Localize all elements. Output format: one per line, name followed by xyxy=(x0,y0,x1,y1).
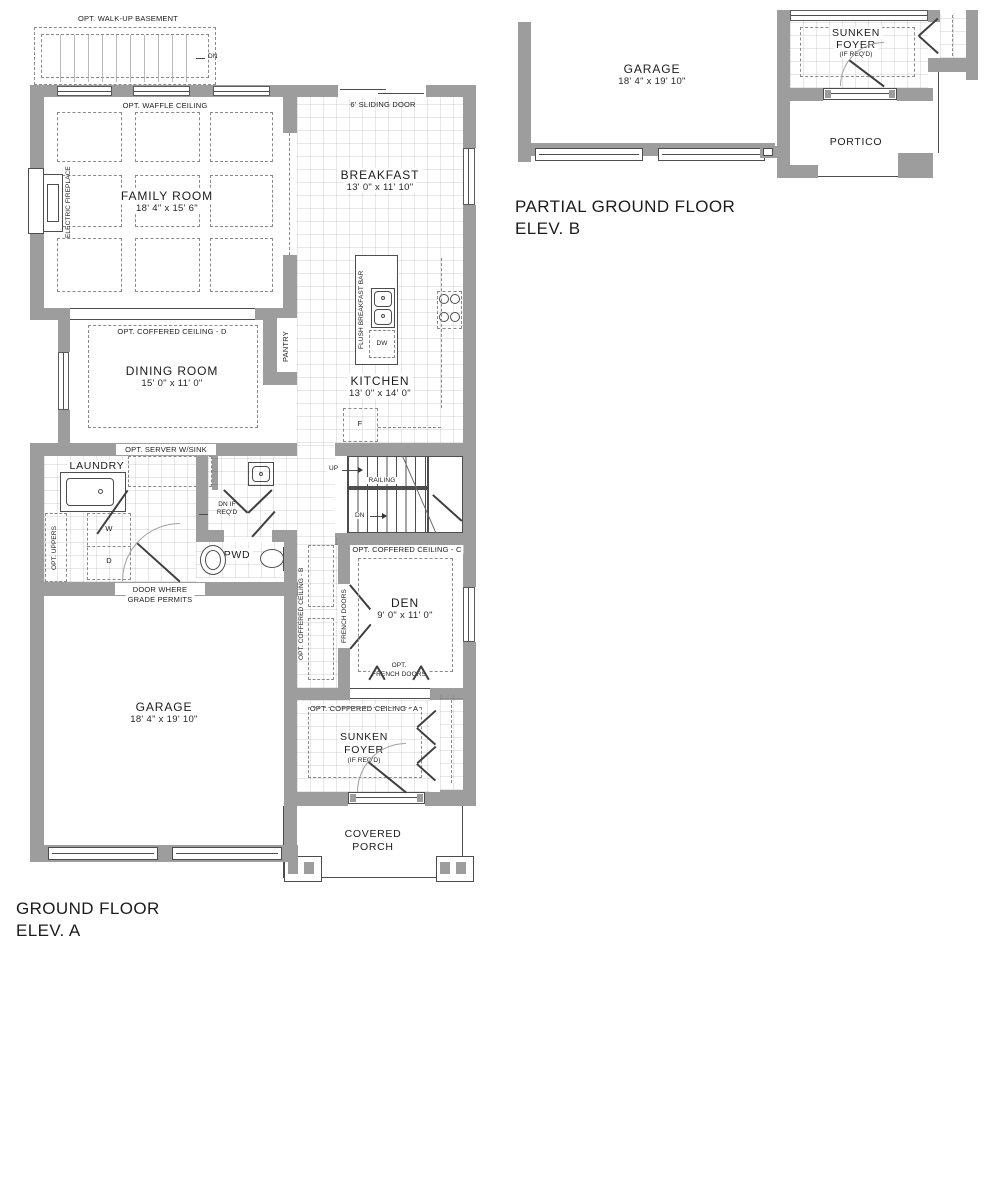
waffle-ceiling-label: OPT. WAFFLE CEILING xyxy=(123,101,208,110)
wall-segment xyxy=(263,372,297,385)
den-label: DEN xyxy=(388,596,422,610)
wall-segment xyxy=(284,537,297,806)
wall-segment xyxy=(196,456,208,537)
window xyxy=(790,10,928,21)
garage-door-line xyxy=(662,154,761,155)
wall-segment xyxy=(897,88,933,101)
covered-porch-label2: PORCH xyxy=(352,841,393,853)
step-line xyxy=(199,514,208,515)
walkup-basement-label: OPT. WALK-UP BASEMENT xyxy=(78,14,178,23)
fridge-label: F xyxy=(358,419,363,428)
wall-segment xyxy=(284,792,348,806)
sill-line xyxy=(831,93,889,94)
closet-shelf-dashed xyxy=(451,700,452,783)
upper-cabinet-dashed xyxy=(441,258,442,408)
dn-arrow-line xyxy=(370,516,382,517)
washer-label: W xyxy=(105,524,112,533)
walkup-dn-label: DN xyxy=(208,53,218,60)
wall-segment xyxy=(777,10,790,167)
coffered-b-outline xyxy=(308,618,334,680)
garage-b-dims: 18' 4" x 19' 10" xyxy=(618,76,685,87)
dining-room-label: DINING ROOM xyxy=(123,364,222,378)
fireplace-firebox xyxy=(47,184,59,222)
plan-b-title-line2: ELEV. B xyxy=(515,218,735,240)
porch-post-pier xyxy=(440,862,450,874)
sunken-foyer-b-label: SUNKEN xyxy=(830,27,882,39)
door-grade-label2: GRADE PERMITS xyxy=(126,595,195,604)
waffle-coffer xyxy=(135,238,200,292)
window xyxy=(133,86,190,96)
den-dims: 9' 0" x 11' 0" xyxy=(374,610,436,621)
sill-jamb xyxy=(825,90,831,98)
portico-edge xyxy=(938,72,939,153)
sliding-door xyxy=(338,85,426,97)
window xyxy=(58,352,69,410)
railing-label: RAILING xyxy=(367,477,398,484)
dn-arrow-head xyxy=(382,513,387,519)
plan-a-title-line1: GROUND FLOOR xyxy=(16,898,160,920)
wall-segment xyxy=(463,642,476,806)
dryer-label: D xyxy=(106,556,112,565)
garage-dims: 18' 4" x 19' 10" xyxy=(130,714,197,725)
wall-segment xyxy=(335,443,463,456)
flush-breakfast-bar-label: FLUSH BREAKFAST BAR xyxy=(358,260,365,360)
family-room-label: FAMILY ROOM xyxy=(118,189,216,203)
hall-floor xyxy=(297,443,335,537)
wall-segment xyxy=(283,255,297,308)
wall-segment xyxy=(284,806,297,845)
waffle-coffer xyxy=(135,112,200,162)
sill-jamb xyxy=(417,794,423,802)
entry-door-sill xyxy=(348,792,425,804)
sunken-foyer-label: SUNKEN xyxy=(338,731,390,743)
garage-door-line xyxy=(176,853,278,854)
sill-jamb xyxy=(889,90,895,98)
walkup-stair-treads xyxy=(60,35,200,82)
sink-drain xyxy=(381,314,385,318)
wall-segment xyxy=(283,97,297,133)
entry-door-sill xyxy=(823,88,897,100)
portico-step-edge xyxy=(818,176,898,177)
opt-french-label: OPT. xyxy=(390,662,409,669)
breakfast-dims: 13' 0" x 11' 10" xyxy=(344,182,417,193)
foyer-b-closet-floor xyxy=(940,13,966,58)
coffered-b-outline xyxy=(308,545,334,607)
wall-segment xyxy=(30,308,70,320)
wall-segment xyxy=(263,308,297,318)
wall-segment xyxy=(440,790,476,806)
wall-segment xyxy=(790,88,823,101)
burner xyxy=(450,294,460,304)
wall-segment xyxy=(58,410,70,443)
garage-door-line xyxy=(539,154,639,155)
wall-segment xyxy=(338,545,350,584)
waffle-coffer xyxy=(210,238,273,292)
up-arrow-head xyxy=(358,467,363,473)
dn-if-reqd-label2: REQ'D xyxy=(217,509,238,516)
pwd-sink-basin xyxy=(205,550,221,570)
window xyxy=(213,86,270,96)
sink-drain xyxy=(381,296,385,300)
kitchen-dims: 13' 0" x 14' 0" xyxy=(346,388,414,399)
porch-post-pier xyxy=(763,148,773,156)
opt-french-label2: FRENCH DOORS xyxy=(370,671,428,678)
fireplace xyxy=(28,168,44,234)
cased-opening xyxy=(70,308,255,309)
walkup-dn-tick xyxy=(196,58,205,59)
wall-segment xyxy=(255,308,263,320)
cased-opening xyxy=(350,698,430,699)
wall-segment xyxy=(463,205,476,587)
porch-post-pier xyxy=(456,862,466,874)
coffered-c-label: OPT. COFFERED CEILING - C xyxy=(350,545,463,554)
wall-segment xyxy=(463,85,476,148)
opt-uppers-label: OPT. UPPERS xyxy=(51,518,58,578)
wall-segment xyxy=(425,792,440,806)
laundry-tub-basin xyxy=(66,478,114,506)
covered-porch-label: COVERED xyxy=(345,828,402,840)
coffered-d-label: OPT. COFFERED CEILING - D xyxy=(115,327,228,336)
sink-drain xyxy=(98,489,103,494)
wall-segment xyxy=(335,533,476,545)
window xyxy=(463,148,475,205)
porch-post-pier xyxy=(304,862,314,874)
plan-a-title: GROUND FLOOR ELEV. A xyxy=(16,898,160,943)
laundry-label: LAUNDRY xyxy=(68,460,127,472)
coffered-b-label: OPT. COFFERED CEILING - B xyxy=(298,555,305,673)
electric-fireplace-label: ELECTRIC FIREPLACE xyxy=(65,152,72,252)
plan-b-title-line1: PARTIAL GROUND FLOOR xyxy=(515,196,735,218)
waffle-coffer xyxy=(210,175,273,227)
kitchen-label: KITCHEN xyxy=(348,374,413,388)
room-divider-dashed xyxy=(289,133,290,255)
portico-label: PORTICO xyxy=(830,136,883,148)
sliding-door-panel xyxy=(340,89,386,90)
breakfast-label: BREAKFAST xyxy=(338,168,423,182)
wall-segment xyxy=(30,456,44,845)
up-arrow-line xyxy=(342,470,358,471)
plan-b-title: PARTIAL GROUND FLOOR ELEV. B xyxy=(515,196,735,241)
wall-segment xyxy=(518,22,531,162)
wall-segment xyxy=(30,85,44,168)
sill-jamb xyxy=(350,794,356,802)
cased-opening xyxy=(70,319,255,320)
plan-a-title-line2: ELEV. A xyxy=(16,920,160,942)
wall-segment xyxy=(777,165,818,178)
waffle-coffer xyxy=(210,112,273,162)
floorplan-sheet: { "colors": {"wall":"#9d9d9d","outline":… xyxy=(0,0,1000,1200)
garage-b-label: GARAGE xyxy=(624,62,681,76)
door-grade-label: DOOR WHERE xyxy=(131,585,190,594)
pwd-label: PWD xyxy=(222,549,253,561)
porch-post-pier xyxy=(288,862,298,874)
cased-opening xyxy=(350,688,430,689)
garage-door-line xyxy=(52,853,154,854)
dining-room-dims: 15' 0" x 11' 0" xyxy=(138,378,205,389)
portico-pier xyxy=(898,153,933,178)
server-sink-label: OPT. SERVER W/SINK xyxy=(125,445,207,454)
toilet-bowl xyxy=(260,549,284,568)
pantry-label: PANTRY xyxy=(281,322,290,372)
dishwasher-label: DW xyxy=(376,340,387,347)
window xyxy=(57,86,112,96)
window xyxy=(463,587,475,642)
wall-segment xyxy=(928,58,978,72)
closet-shelf-dashed xyxy=(952,15,953,56)
sill-line xyxy=(356,797,417,798)
wall-segment xyxy=(58,320,70,352)
dn-if-reqd-label: DN IF xyxy=(218,501,235,508)
burner xyxy=(450,312,460,322)
counter-dashed xyxy=(378,427,441,428)
french-doors-label: FRENCH DOORS xyxy=(341,586,348,646)
washer-dryer-divider xyxy=(87,546,131,547)
family-room-dims: 18' 4" x 15' 6" xyxy=(133,203,201,214)
garage-label: GARAGE xyxy=(136,700,193,714)
wall-segment xyxy=(338,648,350,688)
wall-segment xyxy=(196,530,224,542)
sliding-door-panel xyxy=(378,93,424,94)
up-label: UP xyxy=(327,465,340,472)
hall-floor xyxy=(208,456,297,537)
dn-label: DN xyxy=(353,512,367,519)
wall-segment xyxy=(30,234,44,315)
